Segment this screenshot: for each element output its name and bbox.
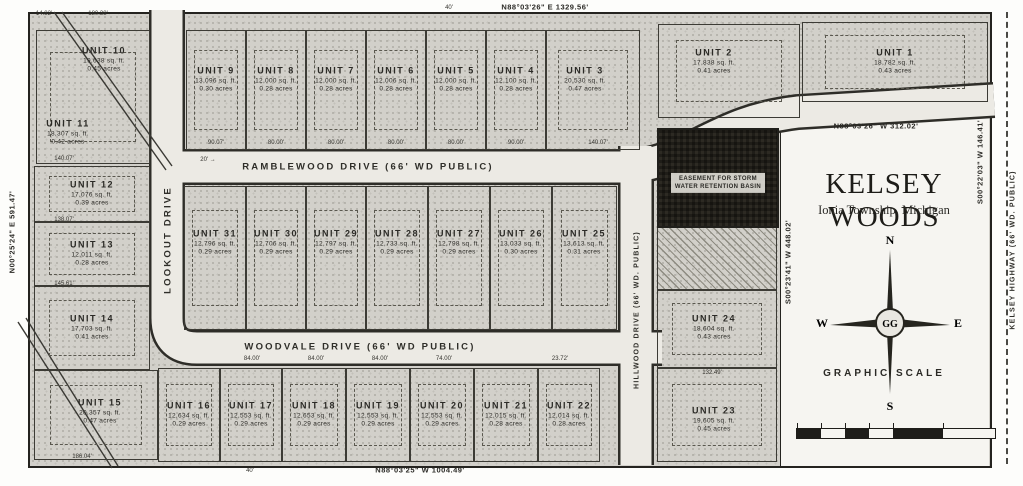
unit-label-13: UNIT 1312,011 sq. ft.0.28 acres	[70, 240, 114, 269]
unit-lot-30	[246, 186, 306, 330]
compass-hub-monogram: GG	[882, 319, 898, 330]
lot-name: UNIT 20	[420, 401, 464, 413]
lot-stats: 0.29 acres	[229, 421, 273, 429]
bearing-label: N88°03'26" E 1329.56'	[501, 3, 588, 12]
dimension-label: 186.04'	[72, 454, 92, 460]
unit-lot-25	[552, 186, 617, 330]
lot-stats: 0.29 acres	[292, 421, 336, 429]
unit-label-15: UNIT 1520,357 sq. ft.0.47 acres	[78, 398, 122, 427]
lot-name: UNIT 16	[167, 401, 211, 413]
graphic-scale-title: GRAPHIC SCALE	[780, 368, 988, 379]
lot-stats: 0.41 acres	[70, 334, 114, 342]
lot-stats: 18,604 sq. ft.	[692, 325, 736, 333]
lot-name: UNIT 3	[564, 66, 606, 78]
unit-label-22: UNIT 2212,014 sq. ft.0.28 acres	[547, 401, 591, 430]
lot-name: UNIT 19	[356, 401, 400, 413]
plat-sheet: EASEMENT FOR STORM WATER RETENTION BASIN…	[0, 0, 1023, 486]
unit-label-6: UNIT 612,006 sq. ft.0.28 acres	[375, 66, 417, 95]
compass-rose-icon: GG N S W E	[816, 232, 964, 412]
compass-west-label: W	[816, 316, 828, 330]
lot-name: UNIT 8	[255, 66, 297, 78]
lot-stats: 12,553 sq. ft.	[229, 412, 273, 420]
lot-stats: 18,782 sq. ft.	[874, 59, 916, 67]
lot-name: UNIT 17	[229, 401, 273, 413]
building-setback-line	[374, 210, 420, 307]
dimension-label: 23.72'	[552, 356, 568, 362]
lot-name: UNIT 13	[70, 240, 114, 252]
lot-stats: 0.39 acres	[70, 200, 114, 208]
dimension-label: 84.00'	[244, 356, 260, 362]
lot-stats: 12,797 sq. ft.	[314, 240, 358, 248]
unit-label-29: UNIT 2912,797 sq. ft.0.29 acres	[314, 229, 358, 258]
lot-stats: 12,000 sq. ft.	[255, 77, 297, 85]
unit-label-1: UNIT 118,782 sq. ft.0.43 acres	[874, 48, 916, 77]
bearing-label: N00°25'24" E 591.47'	[8, 191, 17, 274]
lot-stats: 0.31 acres	[562, 249, 606, 257]
lot-name: UNIT 14	[70, 314, 114, 326]
lot-stats: 18,307 sq. ft.	[46, 130, 90, 138]
dimension-label: 74.00'	[436, 356, 452, 362]
lot-stats: 12,706 sq. ft.	[254, 240, 298, 248]
lot-stats: 0.43 acres	[874, 68, 916, 76]
lot-stats: 0.28 acres	[495, 86, 537, 94]
dimension-label: 145.61'	[54, 281, 74, 287]
lot-stats: 12,733 sq. ft.	[375, 240, 419, 248]
lot-stats: 19,638 sq. ft.	[82, 57, 126, 65]
lot-stats: 0.28 acres	[70, 260, 114, 268]
lot-stats: 0.28 acres	[375, 86, 417, 94]
page-subtitle: Ionia Township, Michigan	[780, 203, 988, 218]
scale-segment	[797, 429, 821, 438]
bearing-label: N88°03'25" W 1004.49'	[375, 466, 464, 475]
unit-label-28: UNIT 2812,733 sq. ft.0.29 acres	[375, 229, 419, 258]
unit-label-7: UNIT 712,000 sq. ft.0.28 acres	[315, 66, 357, 95]
unit-label-30: UNIT 3012,706 sq. ft.0.29 acres	[254, 229, 298, 258]
compass-east-label: E	[954, 316, 962, 330]
dimension-label: 80.00'	[328, 140, 344, 146]
scale-segment	[821, 429, 845, 438]
dimension-label: 90.07'	[208, 140, 224, 146]
lot-stats: 12,006 sq. ft.	[375, 77, 417, 85]
lot-stats: 0.41 acres	[693, 68, 735, 76]
lot-name: UNIT 12	[70, 180, 114, 192]
unit-label-31: UNIT 3112,796 sq. ft.0.29 acres	[193, 229, 237, 258]
building-setback-line	[254, 210, 298, 307]
graphic-scale-bar	[796, 428, 996, 439]
unit-lot-28	[366, 186, 428, 330]
lot-name: UNIT 29	[314, 229, 358, 241]
unit-label-25: UNIT 2513,613 sq. ft.0.31 acres	[562, 229, 606, 258]
unit-label-21: UNIT 2112,015 sq. ft.0.28 acres	[484, 401, 528, 430]
lot-stats: 12,000 sq. ft.	[315, 77, 357, 85]
lot-name: UNIT 22	[547, 401, 591, 413]
lot-name: UNIT 30	[254, 229, 298, 241]
lot-stats: 0.30 acres	[195, 86, 237, 94]
building-setback-line	[498, 210, 544, 307]
dimension-label: 180.38'	[88, 11, 108, 17]
lot-stats: 12,014 sq. ft.	[547, 412, 591, 420]
unit-label-23: UNIT 2319,605 sq. ft.0.45 acres	[692, 406, 736, 435]
lot-stats: 0.29 acres	[375, 249, 419, 257]
lot-stats: 0.28 acres	[484, 421, 528, 429]
unit-label-12: UNIT 1217,076 sq. ft.0.39 acres	[70, 180, 114, 209]
unit-label-24: UNIT 2418,604 sq. ft.0.43 acres	[692, 314, 736, 343]
lot-name: UNIT 2	[693, 48, 735, 60]
lot-name: UNIT 15	[78, 398, 122, 410]
scale-segment	[943, 429, 993, 438]
lot-stats: 0.29 acres	[420, 421, 464, 429]
lot-stats: 0.45 acres	[82, 66, 126, 74]
scale-tick	[943, 423, 944, 429]
scale-segment	[869, 429, 893, 438]
scale-tick	[893, 423, 894, 429]
lot-stats: 17,076 sq. ft.	[70, 191, 114, 199]
lot-stats: 20,357 sq. ft.	[78, 409, 122, 417]
dimension-label: 140.07'	[54, 156, 74, 162]
lot-name: UNIT 6	[375, 66, 417, 78]
lot-stats: 0.28 acres	[315, 86, 357, 94]
unit-lot-26	[490, 186, 552, 330]
lot-name: UNIT 25	[562, 229, 606, 241]
lot-stats: 12,634 sq. ft.	[167, 412, 211, 420]
lot-name: UNIT 1	[874, 48, 916, 60]
unit-lot-27	[428, 186, 490, 330]
scale-tick	[797, 423, 798, 429]
dimension-label: 84.00'	[308, 356, 324, 362]
dimension-label: 40'	[246, 468, 254, 474]
lot-stats: 0.28 acres	[255, 86, 297, 94]
lot-stats: 0.28 acres	[435, 86, 477, 94]
lot-stats: 12,100 sq. ft.	[495, 77, 537, 85]
unit-label-17: UNIT 1712,553 sq. ft.0.29 acres	[229, 401, 273, 430]
lot-stats: 13,096 sq. ft.	[195, 77, 237, 85]
scale-tick	[869, 423, 870, 429]
lot-name: UNIT 10	[82, 46, 126, 58]
lot-stats: 0.29 acres	[254, 249, 298, 257]
easement-hatch-area	[657, 224, 777, 290]
dimension-label: 84.00'	[372, 356, 388, 362]
lot-stats: 17,838 sq. ft.	[693, 59, 735, 67]
dimension-label: 138.07'	[54, 217, 74, 223]
lot-stats: 0.29 acres	[314, 249, 358, 257]
street-label-woodvale: WOODVALE DRIVE (66' WD PUBLIC)	[244, 342, 475, 353]
lot-stats: 0.29 acres	[193, 249, 237, 257]
unit-label-16: UNIT 1612,634 sq. ft.0.29 acres	[167, 401, 211, 430]
dimension-label: 90.00'	[508, 140, 524, 146]
dimension-label: 140.07'	[588, 140, 608, 146]
lot-stats: 0.45 acres	[692, 426, 736, 434]
unit-label-2: UNIT 217,838 sq. ft.0.41 acres	[693, 48, 735, 77]
street-label-ramblewood: RAMBLEWOOD DRIVE (66' WD PUBLIC)	[242, 162, 494, 173]
lot-stats: 0.47 acres	[564, 86, 606, 94]
lot-name: UNIT 5	[435, 66, 477, 78]
easement-label: EASEMENT FOR STORM WATER RETENTION BASIN	[671, 173, 765, 193]
lot-stats: 12,553 sq. ft.	[356, 412, 400, 420]
unit-label-11: UNIT 1118,307 sq. ft.0.42 acres	[46, 119, 90, 148]
storm-water-retention-basin: EASEMENT FOR STORM WATER RETENTION BASIN	[657, 128, 779, 228]
lot-stats: 12,798 sq. ft.	[437, 240, 481, 248]
lot-stats: 0.30 acres	[499, 249, 543, 257]
lot-name: UNIT 31	[193, 229, 237, 241]
lot-stats: 0.47 acres	[78, 418, 122, 426]
unit-label-20: UNIT 2012,553 sq. ft.0.29 acres	[420, 401, 464, 430]
page-title: KELSEY WOODS	[780, 168, 988, 234]
dimension-label: 80.00'	[268, 140, 284, 146]
kelsey-highway-centerline	[1006, 12, 1008, 464]
dimension-label: 132.49'	[702, 370, 722, 376]
dimension-label: 80.00'	[388, 140, 404, 146]
lot-name: UNIT 21	[484, 401, 528, 413]
lot-stats: 12,000 sq. ft.	[435, 77, 477, 85]
lot-name: UNIT 28	[375, 229, 419, 241]
lot-name: UNIT 11	[46, 119, 90, 131]
street-label-lookout: LOOKOUT DRIVE	[163, 186, 174, 294]
lot-stats: 12,015 sq. ft.	[484, 412, 528, 420]
dimension-label: 40'	[445, 5, 453, 11]
lot-stats: 12,796 sq. ft.	[193, 240, 237, 248]
building-setback-line	[314, 210, 358, 307]
lot-stats: 0.28 acres	[547, 421, 591, 429]
lot-name: UNIT 24	[692, 314, 736, 326]
scale-segment	[893, 429, 943, 438]
street-label-kelsey-highway: KELSEY HIGHWAY (66' WD. PUBLIC)	[1010, 170, 1017, 329]
lot-stats: 19,605 sq. ft.	[692, 417, 736, 425]
unit-lot-29	[306, 186, 366, 330]
unit-label-5: UNIT 512,000 sq. ft.0.28 acres	[435, 66, 477, 95]
building-setback-line	[436, 210, 482, 307]
bearing-label: N88°03'26" W 312.02'	[834, 122, 919, 131]
lot-name: UNIT 9	[195, 66, 237, 78]
street-label-hillwood: HILLWOOD DRIVE (66' WD. PUBLIC)	[634, 231, 641, 389]
lot-stats: 0.42 acres	[46, 139, 90, 147]
lot-stats: 12,553 sq. ft.	[420, 412, 464, 420]
scale-tick	[821, 423, 822, 429]
unit-label-26: UNIT 2613,033 sq. ft.0.30 acres	[499, 229, 543, 258]
compass-south-label: S	[887, 399, 894, 412]
lot-name: UNIT 18	[292, 401, 336, 413]
dimension-label: 14.82'	[36, 11, 52, 17]
lot-name: UNIT 27	[437, 229, 481, 241]
lot-name: UNIT 7	[315, 66, 357, 78]
scale-tick	[845, 423, 846, 429]
lot-name: UNIT 23	[692, 406, 736, 418]
lot-stats: 12,653 sq. ft.	[292, 412, 336, 420]
unit-label-14: UNIT 1417,703 sq. ft.0.41 acres	[70, 314, 114, 343]
compass-north-label: N	[886, 233, 895, 247]
lot-stats: 20,530 sq. ft.	[564, 77, 606, 85]
unit-label-4: UNIT 412,100 sq. ft.0.28 acres	[495, 66, 537, 95]
building-setback-line	[561, 210, 609, 307]
lot-stats: 13,033 sq. ft.	[499, 240, 543, 248]
lot-stats: 13,613 sq. ft.	[562, 240, 606, 248]
dimension-label: 20' →	[200, 157, 216, 163]
unit-label-8: UNIT 812,000 sq. ft.0.28 acres	[255, 66, 297, 95]
lot-stats: 0.29 acres	[356, 421, 400, 429]
unit-label-9: UNIT 913,096 sq. ft.0.30 acres	[195, 66, 237, 95]
unit-label-10: UNIT 1019,638 sq. ft.0.45 acres	[82, 46, 126, 75]
unit-label-19: UNIT 1912,553 sq. ft.0.29 acres	[356, 401, 400, 430]
unit-label-18: UNIT 1812,653 sq. ft.0.29 acres	[292, 401, 336, 430]
lot-stats: 17,703 sq. ft.	[70, 325, 114, 333]
building-setback-line	[192, 210, 238, 307]
unit-label-27: UNIT 2712,798 sq. ft.0.29 acres	[437, 229, 481, 258]
scale-segment	[845, 429, 869, 438]
lot-stats: 12,011 sq. ft.	[70, 251, 114, 259]
unit-lot-31	[184, 186, 246, 330]
lot-name: UNIT 26	[499, 229, 543, 241]
dimension-label: 80.00'	[448, 140, 464, 146]
lot-stats: 0.29 acres	[167, 421, 211, 429]
lot-name: UNIT 4	[495, 66, 537, 78]
unit-label-3: UNIT 320,530 sq. ft.0.47 acres	[564, 66, 606, 95]
lot-stats: 0.29 acres	[437, 249, 481, 257]
lot-stats: 0.43 acres	[692, 334, 736, 342]
